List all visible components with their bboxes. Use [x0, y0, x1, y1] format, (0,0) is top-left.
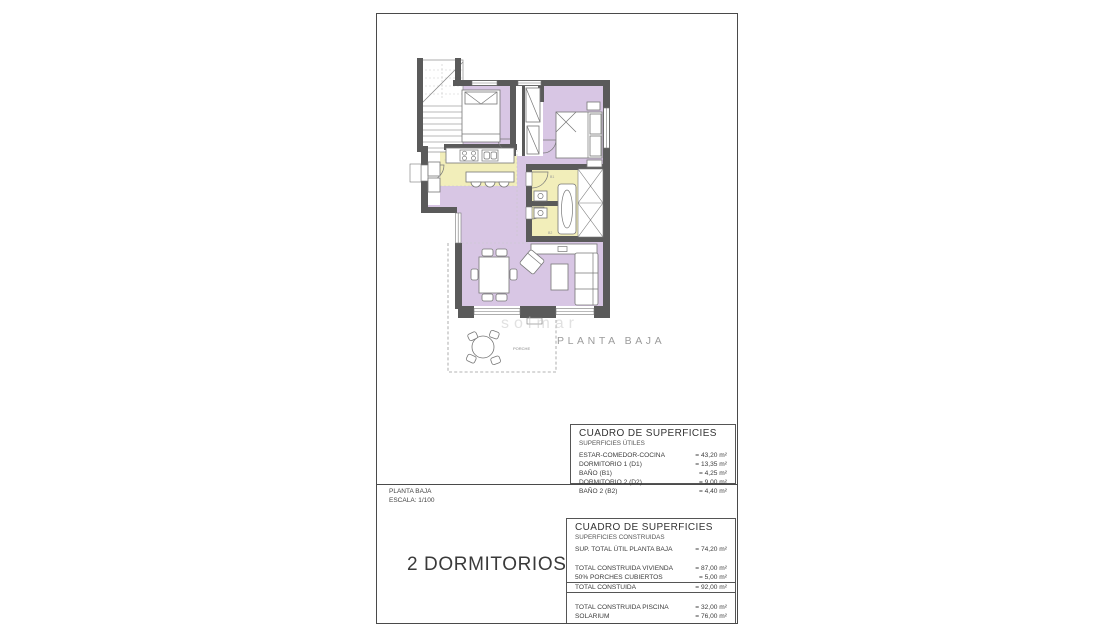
hatched-shaft	[578, 169, 603, 237]
row-label: DORMITORIO 2 (D2)	[579, 478, 642, 487]
table-row: ESTAR-COMEDOR-COCINA= 43,20 m²	[579, 451, 727, 460]
row-label: 50% PORCHES CUBIERTOS	[575, 573, 663, 582]
table-row: SOLARIUM= 76,00 m²	[575, 612, 727, 621]
row-value: = 32,00 m²	[695, 603, 727, 612]
sofa	[575, 253, 598, 305]
row-value: = 87,00 m²	[695, 564, 727, 573]
row-label: SUP. TOTAL ÚTIL PLANTA BAJA	[575, 545, 672, 554]
row-value: = 5,00 m²	[699, 573, 727, 582]
row-label: TOTAL CONSTUIDA	[575, 583, 636, 592]
row-value: = 13,35 m²	[695, 460, 727, 469]
row-value: = 76,00 m²	[695, 612, 727, 621]
table-rows: SUP. TOTAL ÚTIL PLANTA BAJA= 74,20 m²TOT…	[575, 545, 727, 621]
bathtub	[558, 184, 576, 234]
table-subtitle: SUPERFICIES CONSTRUIDAS	[575, 534, 727, 541]
surface-table-utiles: CUADRO DE SUPERFICIES SUPERFICIES ÚTILES…	[570, 424, 736, 484]
table-title: CUADRO DE SUPERFICIES	[579, 428, 727, 439]
room-code-b1: B1	[550, 175, 554, 179]
sideboard	[531, 244, 597, 254]
plan-caption: PLANTA BAJA	[557, 335, 665, 347]
row-label: SOLARIUM	[575, 612, 609, 621]
watermark-text: solmar	[501, 315, 579, 332]
table-rows: ESTAR-COMEDOR-COCINA= 43,20 m²DORMITORIO…	[579, 451, 727, 496]
floor-plan: PORCHE B1 B2 solmar PLANTA BAJA	[377, 14, 737, 485]
drawing-sheet: PORCHE B1 B2 solmar PLANTA BAJA CUADRO D…	[376, 13, 738, 624]
bedroom1-bed	[556, 102, 602, 167]
table-row: 50% PORCHES CUBIERTOS= 5,00 m²	[575, 573, 727, 582]
row-value: = 74,20 m²	[695, 545, 727, 554]
table-row: BAÑO 2 (B2)= 4,40 m²	[579, 487, 727, 496]
table-row: TOTAL CONSTRUIDA PISCINA= 32,00 m²	[575, 603, 727, 612]
plan-name: PLANTA BAJA	[389, 488, 435, 497]
row-value: = 92,00 m²	[695, 583, 727, 592]
title-block: PLANTA BAJA ESCALA: 1/100	[389, 488, 435, 505]
wardrobe-closets	[526, 88, 540, 154]
plan-type-label: 2 DORMITORIOS	[407, 554, 566, 576]
page: { "plan": { "caption": "PLANTA BAJA", "p…	[0, 0, 1110, 626]
breakfast-bar	[466, 172, 514, 187]
table-title: CUADRO DE SUPERFICIES	[575, 522, 727, 533]
table-row: DORMITORIO 2 (D2)= 9,00 m²	[579, 478, 727, 487]
row-label: TOTAL CONSTRUIDA PISCINA	[575, 603, 669, 612]
table-row: TOTAL CONSTRUIDA VIVIENDA= 87,00 m²	[575, 564, 727, 573]
row-value: = 9,00 m²	[699, 478, 727, 487]
table-row: TOTAL CONSTUIDA= 92,00 m²	[567, 582, 735, 593]
surface-table-construidas: CUADRO DE SUPERFICIES SUPERFICIES CONSTR…	[566, 518, 736, 624]
table-row: SUP. TOTAL ÚTIL PLANTA BAJA= 74,20 m²	[575, 545, 727, 554]
staircase	[417, 58, 463, 152]
table-subtitle: SUPERFICIES ÚTILES	[579, 440, 727, 447]
row-value: = 43,20 m²	[695, 451, 727, 460]
row-label: TOTAL CONSTRUIDA VIVIENDA	[575, 564, 673, 573]
row-label: DORMITORIO 1 (D1)	[579, 460, 642, 469]
plan-scale: ESCALA: 1/100	[389, 497, 435, 506]
table-row: DORMITORIO 1 (D1)= 13,35 m²	[579, 460, 727, 469]
row-label: BAÑO 2 (B2)	[579, 487, 617, 496]
row-value: = 4,40 m²	[699, 487, 727, 496]
room-code-b2: B2	[548, 231, 552, 235]
porch-label: PORCHE	[513, 346, 530, 351]
bedroom2-bed	[462, 90, 500, 142]
row-label: ESTAR-COMEDOR-COCINA	[579, 451, 665, 460]
table-row: BAÑO (B1)= 4,25 m²	[579, 469, 727, 478]
row-value: = 4,25 m²	[699, 469, 727, 478]
coffee-table	[551, 264, 568, 290]
row-label: BAÑO (B1)	[579, 469, 612, 478]
